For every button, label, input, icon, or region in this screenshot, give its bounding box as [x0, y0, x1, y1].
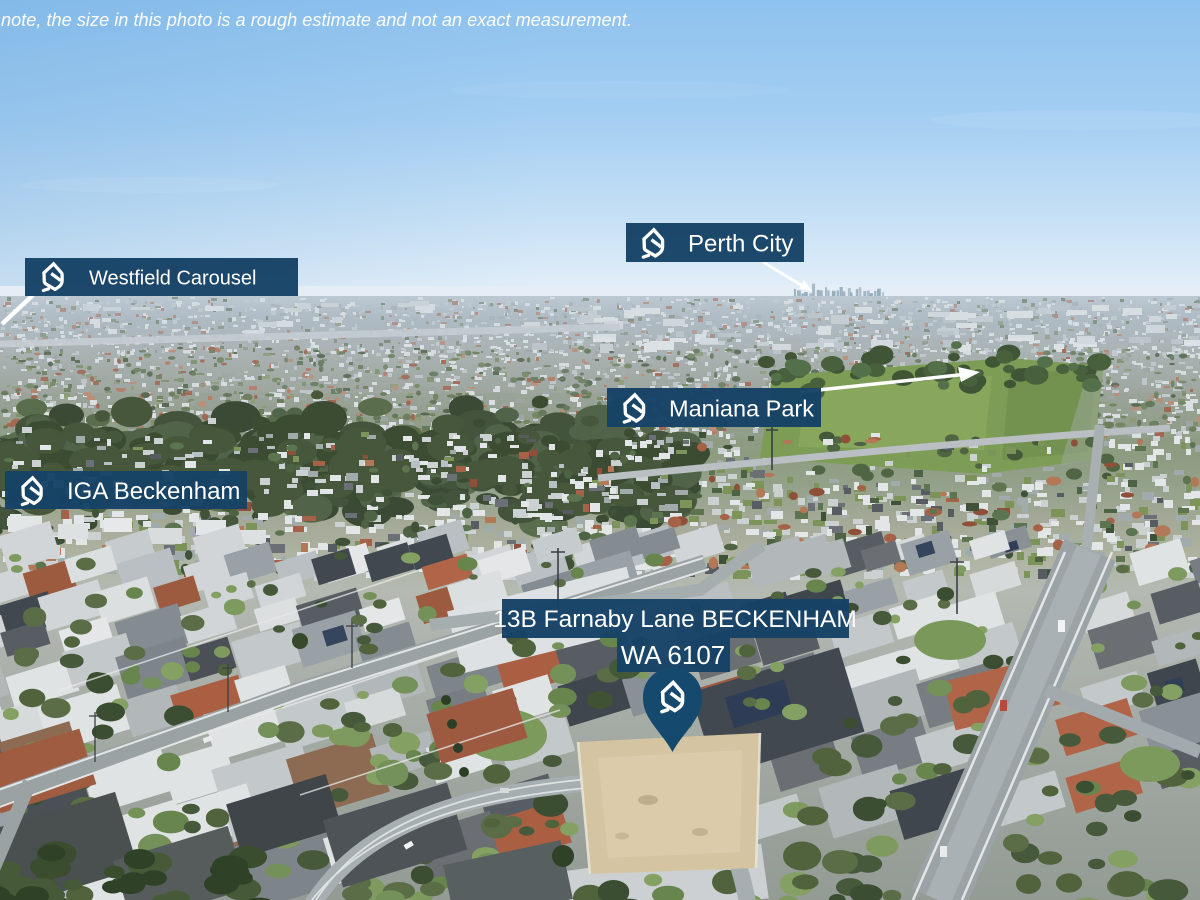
svg-text:Maniana Park: Maniana Park — [669, 396, 814, 422]
svg-text:13B Farnaby Lane BECKENHAM: 13B Farnaby Lane BECKENHAM — [493, 606, 857, 633]
svg-text:IGA Beckenham: IGA Beckenham — [67, 478, 240, 505]
svg-text:Perth City: Perth City — [688, 231, 793, 258]
svg-text:note, the size in this photo i: note, the size in this photo is a rough … — [1, 10, 632, 30]
svg-text:Westfield Carousel: Westfield Carousel — [89, 268, 256, 290]
svg-text:WA 6107: WA 6107 — [621, 640, 726, 670]
